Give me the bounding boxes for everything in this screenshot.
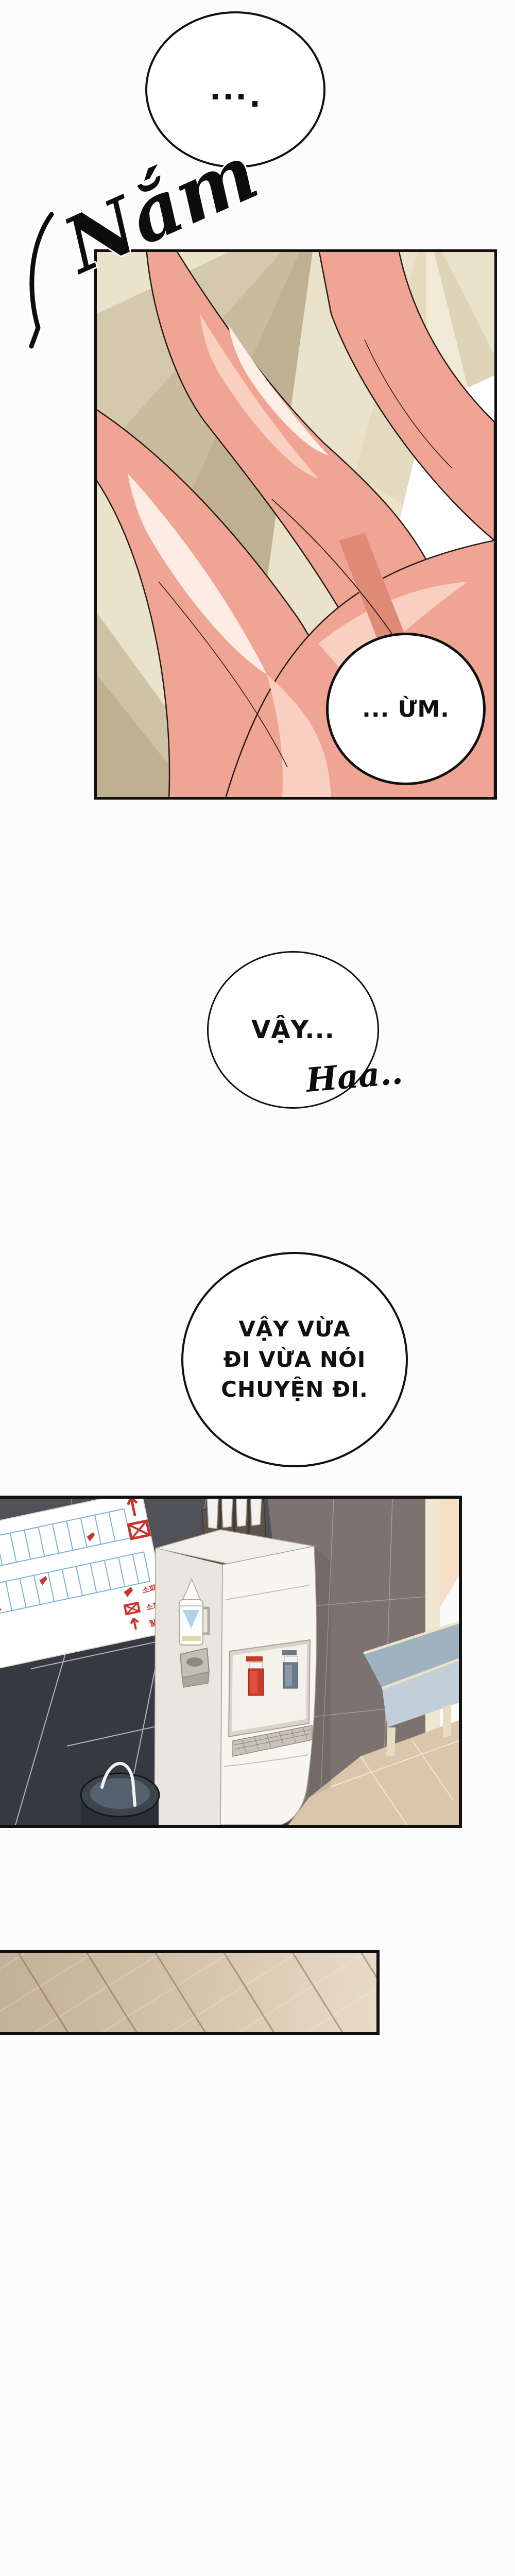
water-cooler (154, 1499, 331, 1825)
cold-label (282, 1650, 297, 1655)
bubble-text: ... ỪM. (362, 696, 450, 722)
webtoon-page: .... Nắm (0, 0, 515, 2576)
bubble-text: VẬY... (251, 1015, 335, 1044)
water-cooler-artwork: 소화기 소화전 탈출구 (0, 1499, 459, 1825)
sfx-swoosh-stroke (25, 210, 81, 365)
bubble-line-1: VẬY VỪA (238, 1314, 350, 1345)
ellipsis-dots: ... (210, 72, 248, 107)
bubble-line-2: ĐI VỪA NÓI (224, 1345, 366, 1375)
dispenser-area (229, 1640, 312, 1756)
sfx-haa-text: Haa.. (304, 1053, 404, 1100)
hot-label (246, 1656, 263, 1662)
ellipsis-tail-dot: . (249, 91, 262, 103)
speech-bubble-walk-talk: VẬY VỪA ĐI VỪA NÓI CHUYỆN ĐI. (181, 1252, 408, 1467)
panel-floor-strip (0, 1950, 380, 2035)
bubble-text: .... (210, 83, 261, 95)
panel-water-cooler: 소화기 소화전 탈출구 (0, 1496, 462, 1828)
cone-cup-holder (180, 1648, 209, 1687)
bubble-line-3: CHUYỆN ĐI. (221, 1375, 368, 1405)
speech-bubble-um: ... ỪM. (326, 633, 486, 785)
panel-hands-closeup: ... ỪM. (94, 249, 497, 800)
